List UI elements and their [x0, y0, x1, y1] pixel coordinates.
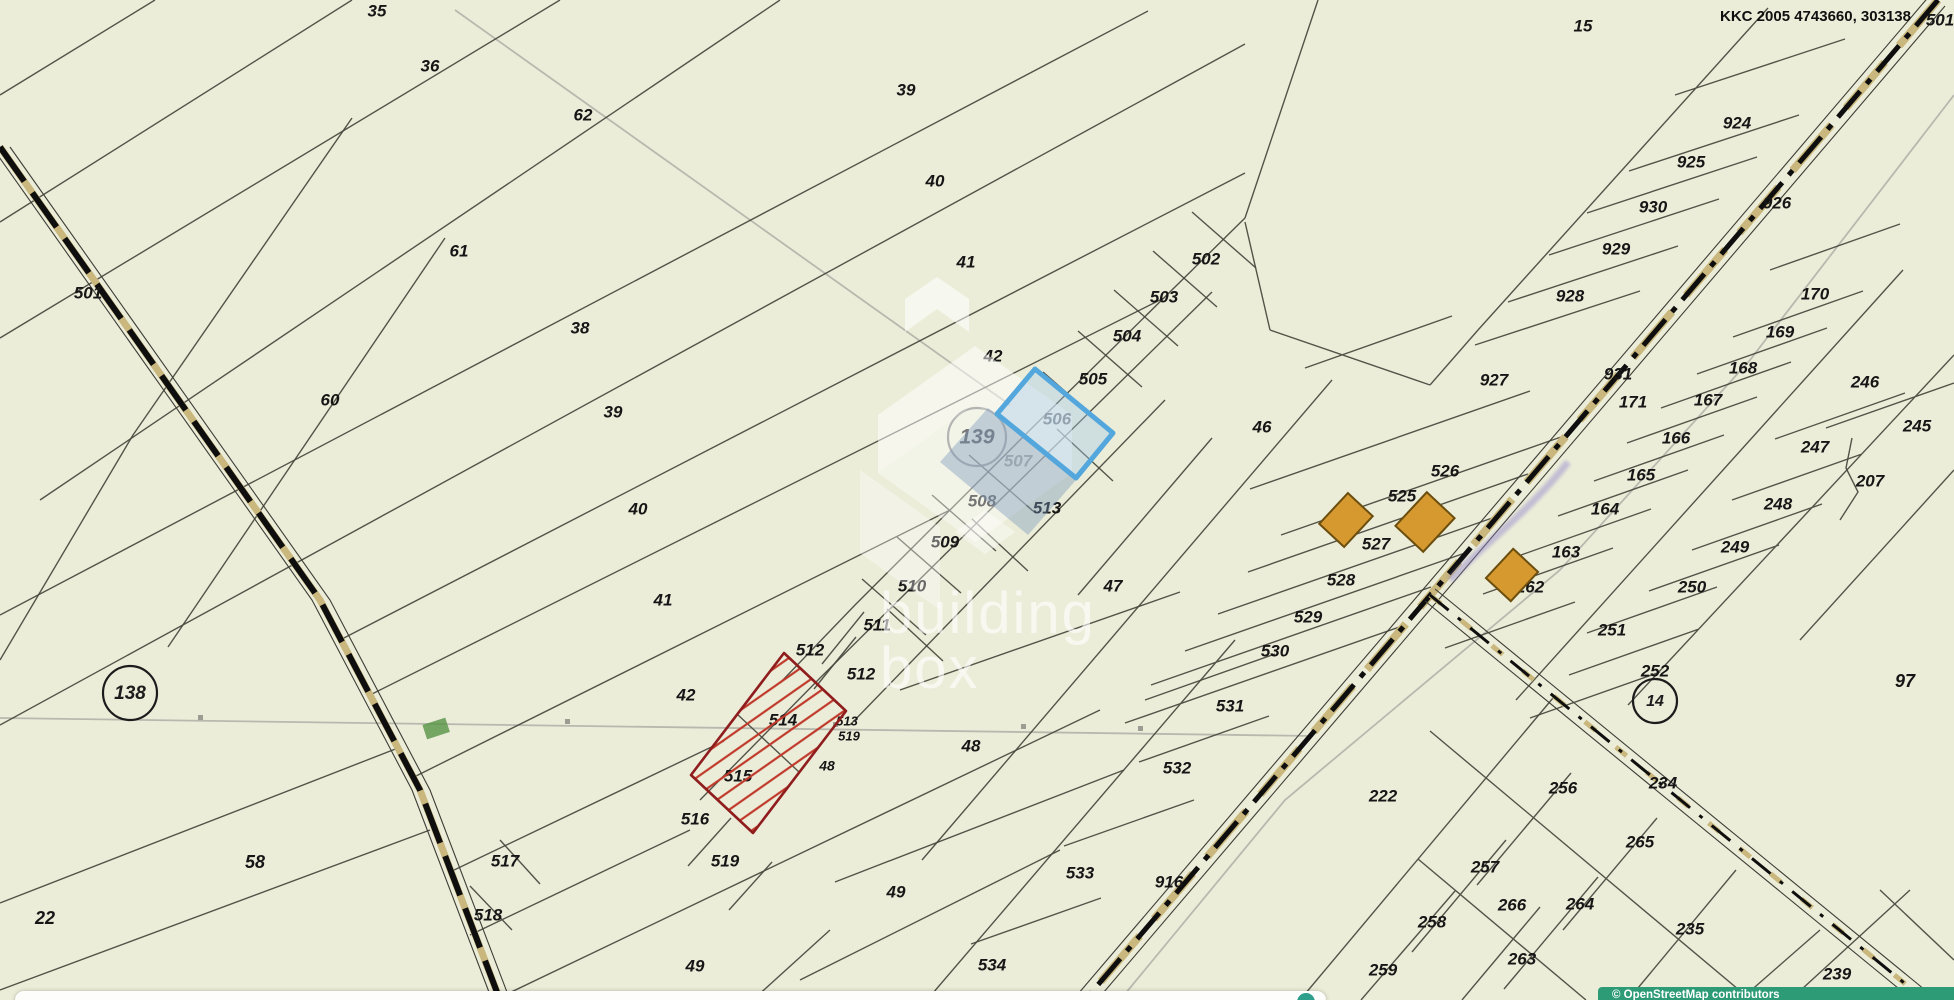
parcel-label-263: 263 — [1507, 949, 1537, 968]
parcel-label-502: 502 — [1192, 249, 1221, 268]
map-canvas[interactable]: 3536623940614138426039404142502503504505… — [0, 0, 1954, 1000]
parcel-label-207: 207 — [1855, 471, 1886, 490]
bottom-panel[interactable] — [15, 991, 1326, 1000]
parcel-label-525: 525 — [1388, 486, 1417, 505]
circled-label-138: 138 — [103, 666, 157, 720]
parcel-label-518: 518 — [474, 905, 503, 924]
attribution-bar: © OpenStreetMap contributors — [1598, 987, 1954, 1000]
parcel-label-22: 22 — [34, 908, 55, 928]
parcel-label-48: 48 — [818, 758, 835, 774]
parcel-label-163: 163 — [1552, 542, 1581, 561]
main-road — [1078, 0, 1945, 1000]
parcel-label-505: 505 — [1079, 369, 1108, 388]
parcel-label-222: 222 — [1368, 786, 1398, 805]
parcel-label-167: 167 — [1694, 390, 1724, 409]
parcel-label-256: 256 — [1548, 778, 1578, 797]
parcel-label-166: 166 — [1662, 428, 1691, 447]
parcel-label-258: 258 — [1417, 912, 1447, 931]
parcel-label-41: 41 — [956, 252, 976, 271]
parcel-label-48: 48 — [961, 736, 981, 755]
highlighted-parcel-red[interactable] — [691, 653, 846, 833]
parcel-label-248: 248 — [1763, 494, 1793, 513]
parcel-label-171: 171 — [1619, 392, 1647, 411]
parcel-label-916: 916 — [1155, 872, 1184, 891]
parcel-label-247: 247 — [1800, 437, 1831, 456]
parcel-label-49: 49 — [886, 882, 906, 901]
parcel-label-925: 925 — [1677, 152, 1706, 171]
parcel-label-39: 39 — [604, 402, 623, 421]
watermark-line2: box — [880, 636, 980, 701]
parcel-label-265: 265 — [1625, 832, 1655, 851]
parcel-label-62: 62 — [574, 105, 593, 124]
parcel-label-41: 41 — [653, 590, 673, 609]
parcel-label-529: 529 — [1294, 607, 1323, 626]
parcel-label-42: 42 — [676, 685, 696, 704]
parcel-label-165: 165 — [1627, 465, 1656, 484]
parcel-label-519: 519 — [711, 851, 740, 870]
parcel-label-526: 526 — [1431, 461, 1460, 480]
parcel-label-235: 235 — [1675, 919, 1705, 938]
parcel-label-924: 924 — [1723, 113, 1752, 132]
parcel-label-40: 40 — [925, 171, 945, 190]
parcel-label-49: 49 — [685, 956, 705, 975]
parcel-label-246: 246 — [1850, 372, 1880, 391]
parcel-label-926: 926 — [1763, 193, 1792, 212]
parcel-label-929: 929 — [1602, 239, 1631, 258]
road-501 — [0, 147, 510, 1000]
parcel-label-249: 249 — [1720, 537, 1750, 556]
parcel-label-927: 927 — [1480, 370, 1510, 389]
parcel-label-512: 512 — [796, 640, 825, 659]
parcel-label-38: 38 — [571, 318, 590, 337]
parcel-label-503: 503 — [1150, 287, 1179, 306]
parcel-label-528: 528 — [1327, 570, 1356, 589]
parcel-label-250: 250 — [1677, 577, 1707, 596]
parcel-label-234: 234 — [1648, 773, 1678, 792]
parcel-label-169: 169 — [1766, 322, 1795, 341]
parcel-label-928: 928 — [1556, 286, 1585, 305]
parcel-label-519: 519 — [838, 728, 860, 743]
parcel-label-251: 251 — [1597, 620, 1626, 639]
circled-label-14: 14 — [1633, 679, 1677, 723]
parcel-label-15: 15 — [1574, 16, 1593, 35]
parcel-label-39: 39 — [897, 80, 916, 99]
cadastral-map: 3536623940614138426039404142502503504505… — [0, 0, 1954, 1000]
parcel-label-512: 512 — [847, 664, 876, 683]
parcel-label-532: 532 — [1163, 758, 1192, 777]
parcel-label-501: 501 — [74, 283, 102, 302]
parcel-label-46: 46 — [1252, 417, 1272, 436]
parcel-label-170: 170 — [1801, 284, 1830, 303]
osm-attribution-link[interactable]: © OpenStreetMap contributors — [1612, 989, 1780, 1000]
parcel-label-264: 264 — [1565, 894, 1595, 913]
parcel-label-245: 245 — [1902, 416, 1932, 435]
parcel-label-58: 58 — [245, 852, 265, 872]
parcel-label-239: 239 — [1822, 964, 1852, 983]
parcel-label-35: 35 — [368, 1, 387, 20]
parcel-label-530: 530 — [1261, 641, 1290, 660]
parcel-label-533: 533 — [1066, 863, 1095, 882]
parcel-label-257: 257 — [1470, 857, 1501, 876]
parcel-label-40: 40 — [628, 499, 648, 518]
svg-text:14: 14 — [1646, 693, 1664, 710]
parcel-label-168: 168 — [1729, 358, 1758, 377]
parcel-label-259: 259 — [1368, 960, 1398, 979]
parcel-label-97: 97 — [1895, 671, 1916, 691]
parcel-label-534: 534 — [978, 955, 1007, 974]
parcel-label-527: 527 — [1362, 534, 1392, 553]
parcel-label-931: 931 — [1604, 364, 1632, 383]
parcel-label-252: 252 — [1640, 661, 1670, 680]
svg-text:138: 138 — [114, 683, 146, 704]
parcel-label-164: 164 — [1591, 499, 1620, 518]
parcel-label-60: 60 — [321, 390, 340, 409]
parcel-label-516: 516 — [681, 809, 710, 828]
parcel-label-266: 266 — [1497, 895, 1527, 914]
parcel-label-504: 504 — [1113, 326, 1142, 345]
parcel-label-47: 47 — [1103, 576, 1124, 595]
parcel-label-36: 36 — [421, 56, 440, 75]
parcel-label-517: 517 — [491, 851, 521, 870]
cadastral-code-label: KKC 2005 4743660, 303138 — [1720, 8, 1950, 25]
parcel-label-930: 930 — [1639, 197, 1668, 216]
parcel-label-61: 61 — [450, 241, 469, 260]
green-area-patch — [422, 718, 449, 740]
parcel-label-531: 531 — [1216, 696, 1244, 715]
